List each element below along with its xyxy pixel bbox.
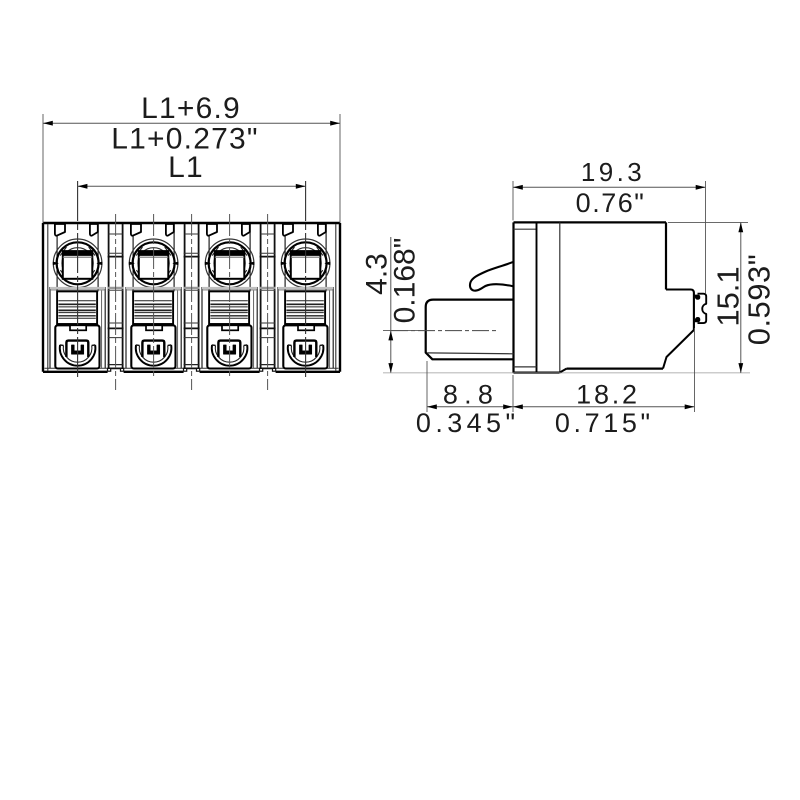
svg-text:0.345": 0.345" bbox=[416, 408, 520, 438]
svg-text:18.2: 18.2 bbox=[576, 380, 640, 410]
svg-text:0.715": 0.715" bbox=[555, 408, 654, 438]
svg-text:L1+6.9: L1+6.9 bbox=[141, 92, 241, 125]
svg-text:0.593": 0.593" bbox=[742, 254, 777, 346]
svg-text:0.168": 0.168" bbox=[389, 238, 422, 324]
svg-text:19.3: 19.3 bbox=[581, 157, 645, 187]
svg-text:8.8: 8.8 bbox=[443, 380, 499, 410]
svg-text:15.1: 15.1 bbox=[711, 266, 746, 326]
svg-text:0.76": 0.76" bbox=[576, 188, 646, 218]
svg-text:L1: L1 bbox=[168, 151, 204, 184]
